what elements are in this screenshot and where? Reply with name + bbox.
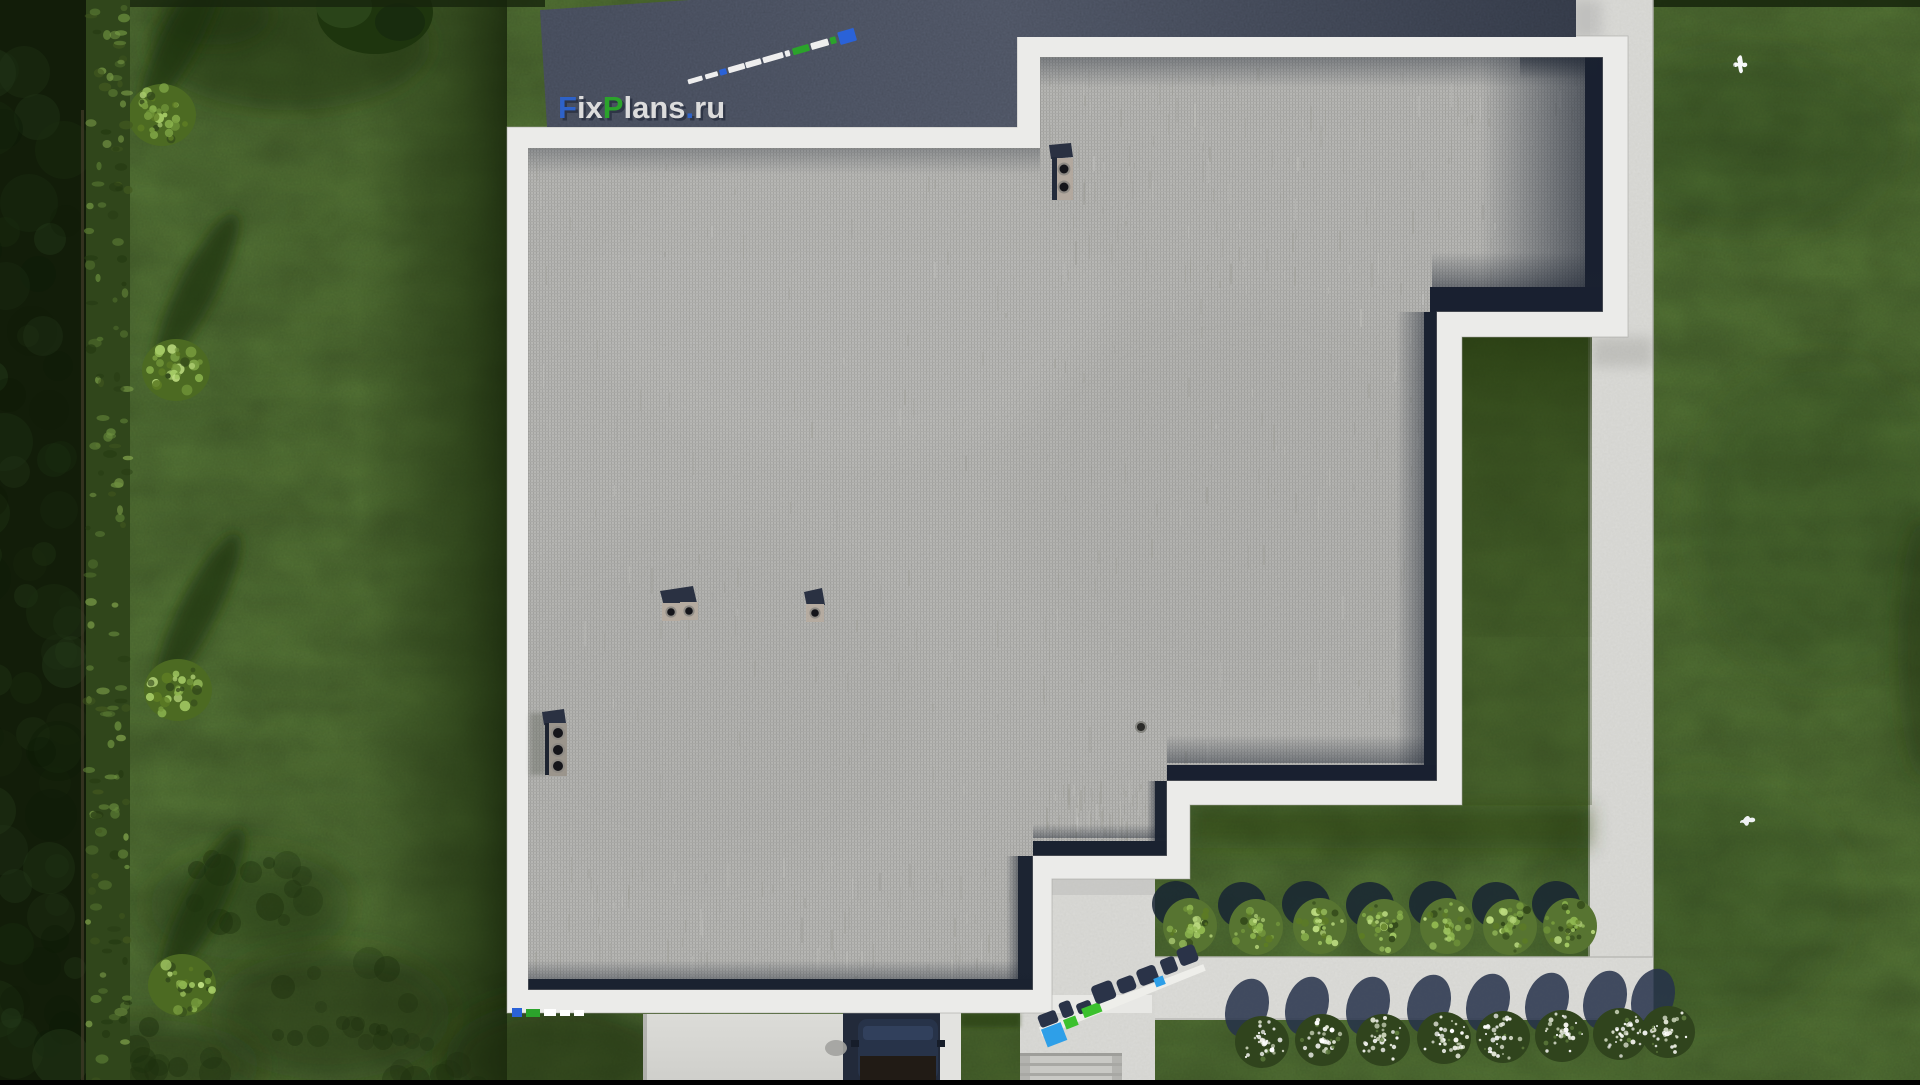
svg-text:FixPlans.ru: FixPlans.ru — [558, 90, 725, 125]
